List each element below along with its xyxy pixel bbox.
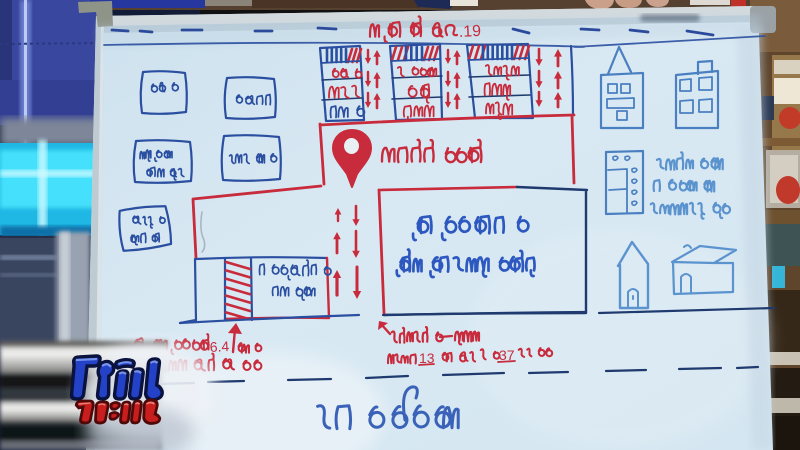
svg-text:6.4: 6.4: [209, 338, 229, 355]
svg-text:.19: .19: [458, 23, 481, 41]
